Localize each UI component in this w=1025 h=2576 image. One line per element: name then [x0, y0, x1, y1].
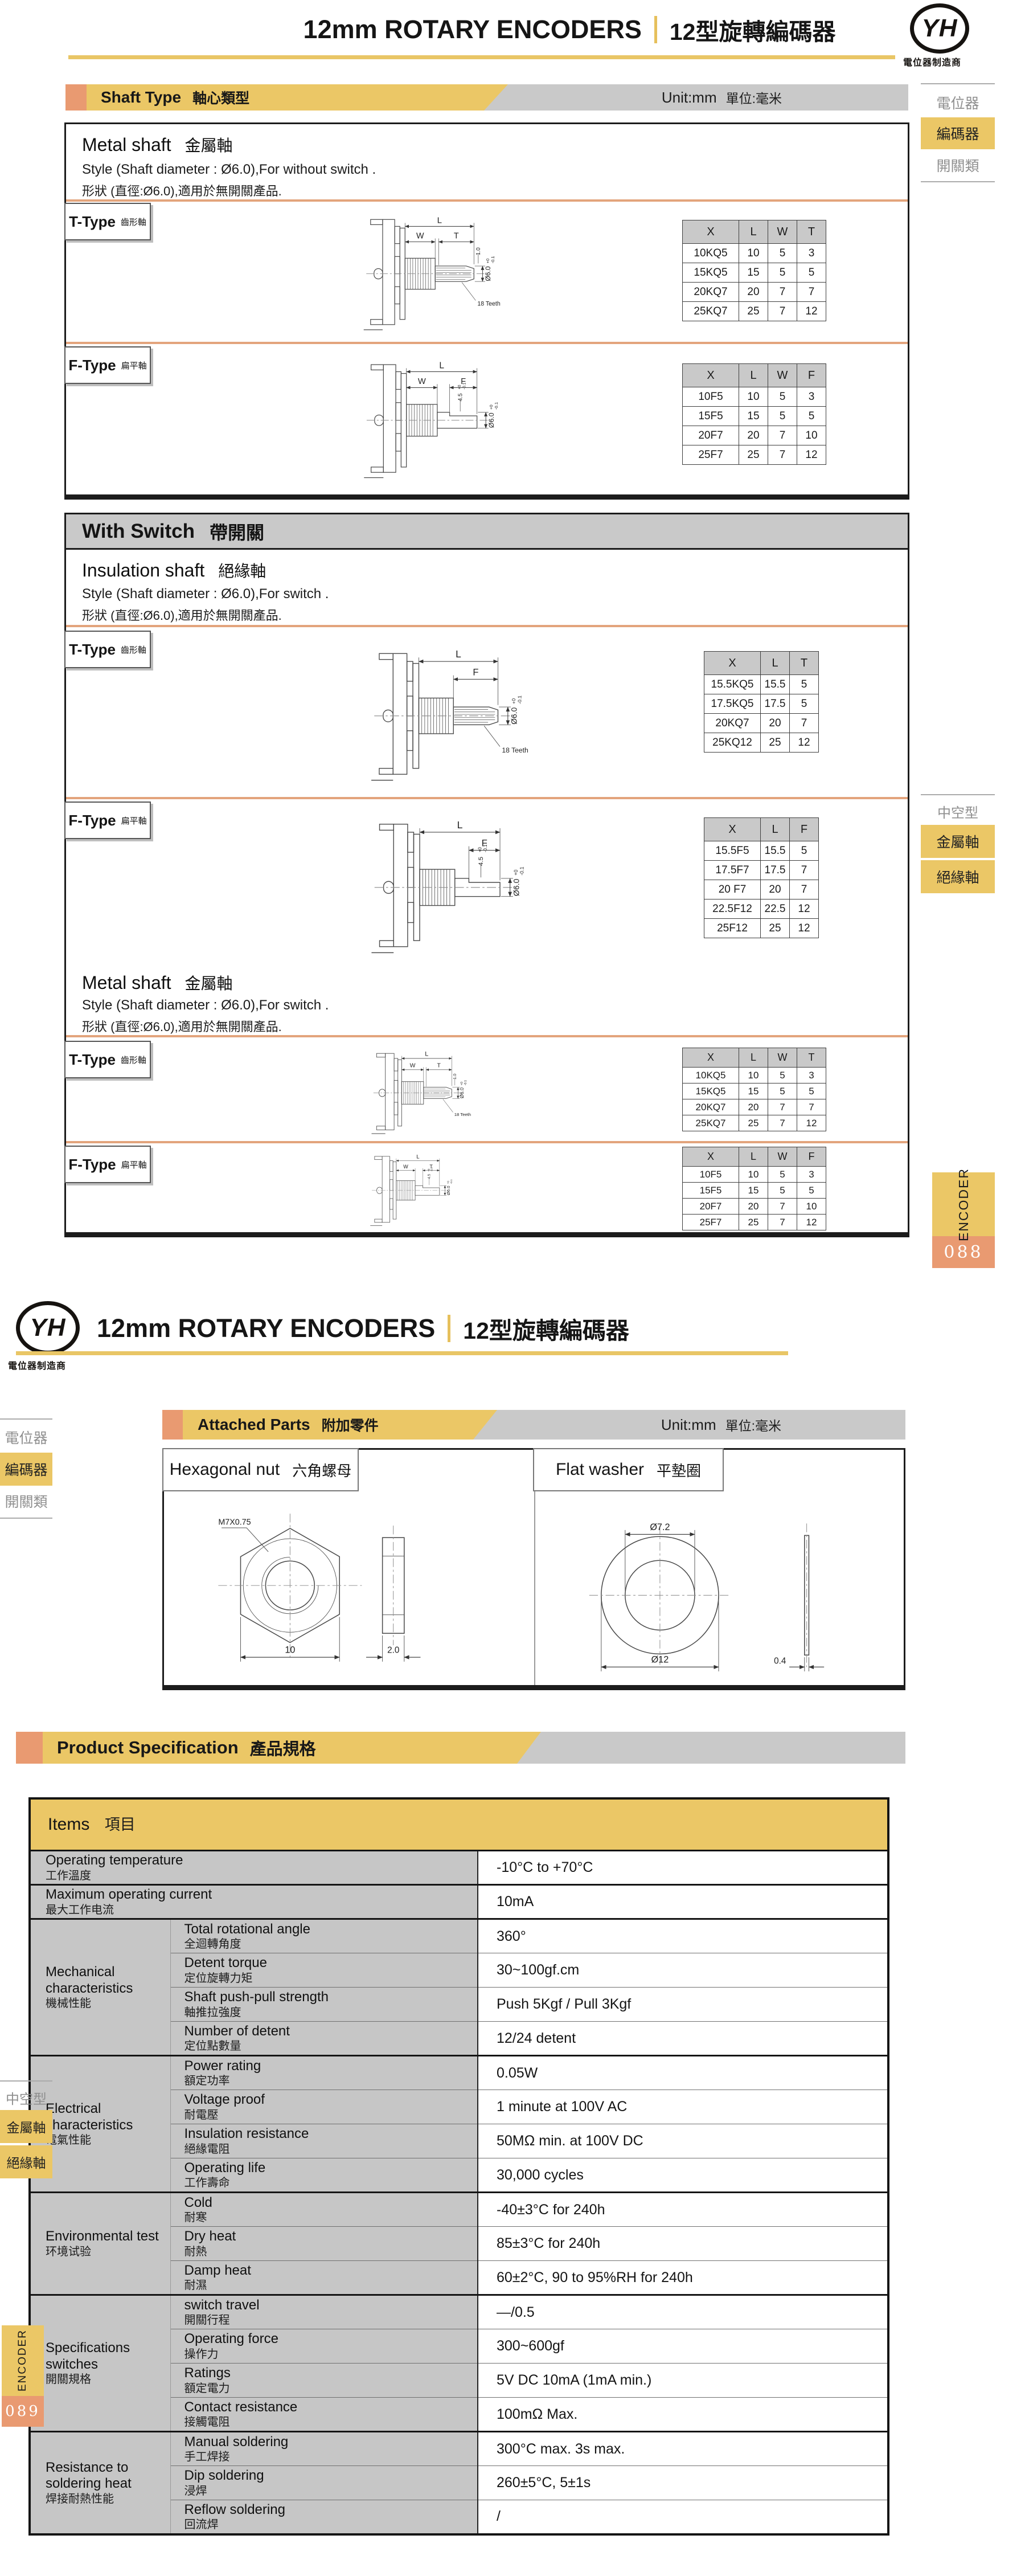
rail-tab-insulation-shaft: 絕緣軸 — [921, 860, 995, 893]
dim-cell: 12 — [790, 733, 819, 753]
spec-val-cell: / — [478, 2500, 888, 2534]
hex-nut-drawing: M7X0.75 10 2.0 — [187, 1504, 491, 1683]
svg-text:F: F — [473, 667, 478, 677]
box-attached-parts: Hexagonal nut 六角螺母 Flat washer 平墊圈 — [162, 1448, 905, 1690]
dim-row: 22.5F1222.512 — [704, 899, 819, 919]
bar-title-zh: 產品規格 — [250, 1736, 316, 1760]
badge-encoder: ENCODER — [2, 2325, 44, 2396]
dim-cell: 20 F7 — [704, 880, 761, 899]
svg-text:4.5: 4.5 — [457, 393, 464, 401]
title-zh: 12型旋轉編碼器 — [463, 1311, 629, 1346]
dim-cell: 20KQ7 — [704, 714, 761, 733]
dim-row: 10KQ51053 — [683, 244, 826, 263]
rail-item-switch: 開關類 — [921, 153, 995, 178]
dim-cell: 5 — [797, 407, 826, 426]
svg-text:-0.1: -0.1 — [516, 696, 522, 704]
dim-cell: 20 — [761, 880, 790, 899]
dim-cell: 5 — [768, 244, 797, 263]
bar-title-zh: 軸心類型 — [192, 87, 249, 108]
spec-sub-cell: Reflow soldering回流焊 — [170, 2500, 478, 2534]
svg-text:4.5: 4.5 — [428, 1173, 432, 1179]
dim-cell: 7 — [768, 1115, 797, 1131]
page-badge: ENCODER 089 — [2, 2325, 44, 2427]
shaft-type-label-t: T-Type 齒形軸 — [64, 203, 151, 240]
dim-row: 10KQ51053 — [683, 1068, 826, 1083]
dim-cell: 15.5KQ5 — [704, 675, 761, 694]
dim-cell: 5 — [797, 263, 826, 283]
spec-val-cell: 360° — [478, 1919, 888, 1953]
spec-sub-cell: Detent torque定位旋轉力矩 — [170, 1953, 478, 1988]
svg-text:+0: +0 — [511, 698, 516, 704]
type-label-zh: 扁平軸 — [121, 815, 147, 827]
subsection-title-en: Insulation shaft — [82, 560, 204, 581]
box-metal-shaft-no-switch: Metal shaft 金屬軸 Style (Shaft diameter : … — [64, 122, 909, 500]
dim-cell: 25F7 — [683, 445, 739, 465]
dim-cell: 7 — [790, 861, 819, 880]
dim-header-cell: F — [797, 1147, 826, 1167]
dim-row: 15.5F515.55 — [704, 841, 819, 861]
dim-header-cell: X — [683, 1048, 739, 1068]
title-zh: 12型旋轉編碼器 — [670, 13, 836, 47]
hex-nut-label-en: Hexagonal nut — [170, 1460, 280, 1479]
svg-text:W: W — [410, 1062, 416, 1069]
dim-header-cell: W — [768, 364, 797, 387]
subsection-title: Metal shaft 金屬軸 — [82, 133, 233, 156]
dim-row: 15F51555 — [683, 407, 826, 426]
dim-header-cell: W — [768, 1048, 797, 1068]
page-2: YH 電位器制造商 12mm ROTARY ENCODERS 12型旋轉編碼器 … — [0, 1287, 1025, 2576]
t-type-drawing: LWTØ6.0+0-0.11.018 Teeth — [362, 1040, 497, 1140]
dim-cell: 12 — [797, 445, 826, 465]
encoder-technical-drawing: LWFØ6.0+0-0.14.5+0-0.1 — [351, 345, 540, 486]
spec-val-cell: Push 5Kgf / Pull 3Kgf — [478, 1988, 888, 2022]
dim-cell: 3 — [797, 1167, 826, 1183]
dim-cell: 10KQ5 — [683, 1068, 739, 1083]
svg-text:18 Teeth: 18 Teeth — [454, 1112, 471, 1117]
encoder-technical-drawing: LWTØ6.0+0-0.11.018 Teeth — [362, 1040, 497, 1140]
spec-val-cell: 0.05W — [478, 2056, 888, 2090]
spec-sub-cell: Dry heat耐熱 — [170, 2227, 478, 2261]
dim-row: 25F725712 — [683, 445, 826, 465]
hex-nut-label: Hexagonal nut 六角螺母 — [162, 1448, 359, 1491]
dim-cell: 12 — [790, 919, 819, 938]
spec-row: Electrical characteristics電氣性能Power rati… — [30, 2056, 888, 2090]
style-note-zh: 形狀 (直徑:Ø6.0),適用於無開關產品. — [82, 181, 282, 199]
svg-text:-0.1: -0.1 — [483, 844, 488, 852]
with-switch-zh: 帶開關 — [210, 518, 264, 545]
rail-tab-encoder-active: 編碼器 — [921, 117, 995, 149]
svg-text:T: T — [454, 232, 459, 241]
svg-text:-0.1: -0.1 — [463, 382, 467, 389]
spec-sub-cell: Dip soldering浸焊 — [170, 2466, 478, 2500]
svg-text:+0: +0 — [489, 404, 494, 410]
dim-cell: 17.5 — [761, 694, 790, 714]
bar-accent — [65, 84, 87, 111]
dim-header-cell: X — [683, 1147, 739, 1167]
dim-row: 10F51053 — [683, 387, 826, 407]
dim-cell: 5 — [797, 1183, 826, 1199]
spec-sub-cell: Number of detent定位點數量 — [170, 2022, 478, 2056]
spec-val-cell: 12/24 detent — [478, 2022, 888, 2056]
spec-cat-cell: Operating temperature工作溫度 — [30, 1851, 478, 1885]
dim-cell: 10 — [797, 1199, 826, 1215]
subsection-title-zh: 絕緣軸 — [218, 559, 266, 582]
spec-sub-cell: Contact resistance接觸電阻 — [170, 2398, 478, 2432]
section-bar-shaft-type: Shaft Type 軸心類型 Unit:mm 單位:毫米 — [65, 84, 908, 111]
flat-washer-label-en: Flat washer — [556, 1460, 644, 1479]
spec-sub-cell: Insulation resistance絕緣電阻 — [170, 2124, 478, 2158]
t-type-drawing: LFØ6.0+0-0.118 Teeth — [356, 632, 569, 790]
dim-header-cell: L — [739, 220, 768, 244]
rail-item-potentiometer: 電位器 — [921, 90, 995, 115]
svg-text:+0: +0 — [485, 259, 490, 264]
spec-val-cell: -40±3°C for 240h — [478, 2193, 888, 2227]
salmon-divider — [66, 342, 908, 344]
spec-cat-cell: Maximum operating current最大工作电流 — [30, 1885, 478, 1919]
dim-header-cell: L — [739, 1147, 768, 1167]
rail-divider — [0, 1518, 52, 1519]
dim-cell: 10 — [739, 387, 768, 407]
salmon-divider — [66, 797, 908, 799]
dim-cell: 15KQ5 — [683, 263, 739, 283]
spec-val-cell: 260±5°C, 5±1s — [478, 2466, 888, 2500]
shaft-type-label-t: T-Type 齒形軸 — [64, 1041, 151, 1078]
dim-row: 15KQ51555 — [683, 1083, 826, 1099]
type-label-en: T-Type — [69, 1051, 116, 1069]
dim-row: 15.5KQ515.55 — [704, 675, 819, 694]
dim-cell: 7 — [768, 302, 797, 321]
nut-thickness-dim: 2.0 — [387, 1646, 399, 1655]
dim-cell: 17.5 — [761, 861, 790, 880]
svg-text:18 Teeth: 18 Teeth — [477, 301, 501, 308]
unit-label: Unit:mm 單位:毫米 — [661, 1410, 781, 1440]
dim-row: 15KQ51555 — [683, 263, 826, 283]
encoder-technical-drawing: LFØ6.0+0-0.14.5+0-0.1 — [356, 802, 572, 963]
rail-item-switch: 開關類 — [0, 1489, 52, 1513]
bar-accent — [162, 1410, 183, 1440]
dim-cell: 20 — [761, 714, 790, 733]
shaft-type-label-f: F-Type 扁平軸 — [64, 346, 151, 384]
svg-text:L: L — [416, 1154, 419, 1160]
flat-washer-label-zh: 平墊圈 — [657, 1459, 701, 1481]
dim-row: 25F122512 — [704, 919, 819, 938]
spec-val-cell: 300~600gf — [478, 2329, 888, 2364]
dim-header-cell: X — [704, 818, 761, 841]
spec-val-cell: 300°C max. 3s max. — [478, 2432, 888, 2466]
style-note-zh: 形狀 (直徑:Ø6.0),適用於無開關產品. — [82, 1017, 282, 1035]
svg-text:W: W — [403, 1164, 408, 1170]
dim-cell: 5 — [768, 387, 797, 407]
badge-encoder: ENCODER — [932, 1172, 995, 1236]
spec-val-cell: 10mA — [478, 1885, 888, 1919]
dim-cell: 12 — [797, 1115, 826, 1131]
spec-sub-cell: Damp heat耐濕 — [170, 2261, 478, 2295]
with-switch-bar: With Switch 帶開關 — [66, 514, 908, 550]
svg-text:-0.1: -0.1 — [494, 402, 499, 410]
washer-outer-dim: Ø12 — [651, 1655, 669, 1665]
type-label-en: T-Type — [69, 641, 116, 659]
svg-text:+0: +0 — [461, 1082, 464, 1085]
svg-text:18 Teeth: 18 Teeth — [502, 746, 528, 754]
spec-val-cell: —/0.5 — [478, 2295, 888, 2329]
type-label-en: F-Type — [68, 357, 116, 374]
spec-row: Resistance to soldering heat焊接耐熱性能Manual… — [30, 2432, 888, 2466]
spec-row: Specifications switches開關規格switch travel… — [30, 2295, 888, 2329]
svg-text:4.5: 4.5 — [478, 857, 485, 866]
dim-row: 20KQ72077 — [683, 1099, 826, 1115]
bar-title-en: Product Specification — [57, 1737, 239, 1758]
hex-nut-label-zh: 六角螺母 — [292, 1459, 351, 1481]
dimension-table-t: XLWT 10KQ5105315KQ5155520KQ7207725KQ7257… — [682, 1048, 826, 1131]
dim-cell: 7 — [768, 1215, 797, 1230]
dim-cell: 7 — [768, 445, 797, 465]
dim-cell: 25 — [761, 733, 790, 753]
rail-divider — [921, 181, 995, 182]
bar-title-en: Attached Parts — [198, 1416, 310, 1434]
shaft-type-label-f: F-Type 扁平軸 — [64, 802, 151, 839]
dim-row: 15F51555 — [683, 1183, 826, 1199]
spec-cat-cell: Mechanical characteristics機械性能 — [30, 1919, 170, 2056]
bar-accent — [16, 1732, 43, 1764]
spec-cat-cell: Environmental test环境试验 — [30, 2193, 170, 2295]
washer-inner-dim: Ø7.2 — [650, 1522, 670, 1532]
dim-cell: 17.5KQ5 — [704, 694, 761, 714]
bar-title-en: Shaft Type — [101, 88, 181, 107]
spec-row: Maximum operating current最大工作电流10mA — [30, 1885, 888, 1919]
spec-val-cell: 5V DC 10mA (1mA min.) — [478, 2364, 888, 2398]
dim-cell: 3 — [797, 1068, 826, 1083]
dim-cell: 12 — [797, 302, 826, 321]
dim-header-cell: W — [768, 1147, 797, 1167]
dim-header-cell: X — [704, 652, 761, 675]
dim-cell: 15F5 — [683, 407, 739, 426]
rail-tab-metal-shaft: 金屬軸 — [0, 2110, 52, 2143]
rail-heading-hollow: 中空型 — [921, 800, 995, 823]
rail-tab-encoder-active: 編碼器 — [0, 1453, 52, 1486]
dim-cell: 5 — [790, 694, 819, 714]
dim-cell: 20 — [739, 1099, 768, 1115]
svg-text:+0: +0 — [446, 1181, 450, 1184]
spec-val-cell: 30~100gf.cm — [478, 1953, 888, 1988]
spec-sub-cell: Total rotational angle全迴轉角度 — [170, 1919, 478, 1953]
dim-row: 25F725712 — [683, 1215, 826, 1230]
shaft-type-label-t: T-Type 齒形軸 — [64, 631, 151, 668]
dim-cell: 22.5 — [761, 899, 790, 919]
page-title: 12mm ROTARY ENCODERS 12型旋轉編碼器 — [97, 1311, 629, 1346]
dim-cell: 7 — [768, 426, 797, 445]
box-with-switch: With Switch 帶開關 Insulation shaft 絕緣軸 Sty… — [64, 513, 909, 1237]
svg-text:L: L — [439, 361, 444, 370]
svg-text:-0.1: -0.1 — [464, 1080, 468, 1085]
style-note-en: Style (Shaft diameter : Ø6.0),For withou… — [82, 162, 376, 178]
svg-text:-0.1: -0.1 — [450, 1179, 453, 1184]
subsection-title: Metal shaft 金屬軸 — [82, 971, 233, 994]
bar-title-zh: 附加零件 — [322, 1414, 379, 1435]
svg-text:Ø6.0: Ø6.0 — [459, 1087, 465, 1098]
dim-header-cell: T — [790, 652, 819, 675]
type-label-zh: 齒形軸 — [121, 1054, 146, 1066]
dim-row: 25KQ122512 — [704, 733, 819, 753]
dim-cell: 25 — [761, 919, 790, 938]
dim-cell: 5 — [768, 1167, 797, 1183]
dim-cell: 25KQ7 — [683, 302, 739, 321]
bar-title: Product Specification 產品規格 — [57, 1732, 316, 1764]
with-switch-en: With Switch — [82, 520, 195, 543]
flat-washer-drawing: Ø7.2 Ø12 0.4 — [551, 1504, 856, 1683]
dim-cell: 25KQ7 — [683, 1115, 739, 1131]
dimension-table-f: XLWF 10F5105315F5155520F72071025F725712 — [682, 1147, 826, 1230]
dim-cell: 15 — [739, 263, 768, 283]
type-label-en: F-Type — [68, 812, 116, 829]
dim-header-cell: T — [797, 1048, 826, 1068]
flat-washer-label: Flat washer 平墊圈 — [533, 1448, 724, 1491]
dim-cell: 5 — [790, 675, 819, 694]
spec-sub-cell: Operating force操作力 — [170, 2329, 478, 2364]
unit-en: Unit:mm — [661, 1416, 716, 1434]
dim-cell: 10 — [797, 426, 826, 445]
svg-text:Ø6.0: Ø6.0 — [446, 1186, 451, 1195]
dim-cell: 17.5F7 — [704, 861, 761, 880]
dim-header-cell: F — [790, 818, 819, 841]
title-separator — [448, 1315, 450, 1342]
spec-val-cell: 100mΩ Max. — [478, 2398, 888, 2432]
dim-cell: 15 — [739, 1083, 768, 1099]
spec-sub-cell: Cold耐寒 — [170, 2193, 478, 2227]
type-label-zh: 齒形軸 — [121, 644, 146, 656]
rail-tab-insulation-shaft: 絕緣軸 — [0, 2145, 52, 2178]
dim-header-cell: X — [683, 220, 739, 244]
dim-cell: 10 — [739, 1167, 768, 1183]
dim-header-cell: L — [739, 364, 768, 387]
svg-text:W: W — [416, 232, 424, 241]
dim-cell: 10 — [739, 244, 768, 263]
type-label-en: F-Type — [68, 1156, 116, 1173]
dim-cell: 25F12 — [704, 919, 761, 938]
dim-header-cell: L — [761, 818, 790, 841]
section-bar-attached-parts: Attached Parts 附加零件 Unit:mm 單位:毫米 — [162, 1410, 905, 1440]
dim-row: 20 F7207 — [704, 880, 819, 899]
page-title: 12mm ROTARY ENCODERS 12型旋轉編碼器 — [245, 13, 894, 47]
dim-cell: 20KQ7 — [683, 1099, 739, 1115]
dim-cell: 10F5 — [683, 1167, 739, 1183]
svg-text:Ø6.0: Ø6.0 — [487, 412, 495, 428]
unit-label: Unit:mm 單位:毫米 — [662, 84, 782, 111]
page-1: 12mm ROTARY ENCODERS 12型旋轉編碼器 YH 電位器制造商 … — [0, 0, 1025, 1287]
dim-cell: 20F7 — [683, 426, 739, 445]
f-type-drawing: LWFØ6.0+0-0.14.5+0-0.1 — [351, 345, 540, 486]
dim-cell: 20F7 — [683, 1199, 739, 1215]
dim-cell: 20 — [739, 283, 768, 302]
subsection-title-en: Metal shaft — [82, 134, 171, 156]
dim-cell: 20KQ7 — [683, 283, 739, 302]
dim-cell: 5 — [768, 1068, 797, 1083]
svg-text:+0: +0 — [427, 1168, 430, 1171]
unit-en: Unit:mm — [662, 89, 717, 107]
spec-row: Environmental test环境试验Cold耐寒-40±3°C for … — [30, 2193, 888, 2227]
svg-text:Ø6.0: Ø6.0 — [512, 878, 521, 896]
rail-divider — [0, 1418, 52, 1420]
svg-text:Ø6.0: Ø6.0 — [509, 707, 518, 724]
spec-cat-cell: Specifications switches開關規格 — [30, 2295, 170, 2432]
spec-row: Mechanical characteristics機械性能Total rota… — [30, 1919, 888, 1953]
brand-logo: YH — [910, 3, 969, 54]
unit-zh: 單位:毫米 — [726, 88, 782, 107]
page-number: 089 — [2, 2396, 44, 2427]
subsection-title: Insulation shaft 絕緣軸 — [82, 559, 266, 582]
dim-row: 17.5F717.57 — [704, 861, 819, 880]
dim-cell: 12 — [790, 899, 819, 919]
spec-header-row: Items 項目 — [30, 1798, 888, 1851]
dimension-table-f: XLF 15.5F515.5517.5F717.5720 F720722.5F1… — [704, 817, 819, 938]
svg-text:-0.1: -0.1 — [519, 866, 524, 875]
dim-cell: 7 — [797, 1099, 826, 1115]
svg-text:-0.1: -0.1 — [490, 256, 495, 263]
svg-text:+0: +0 — [513, 870, 519, 876]
spec-val-cell: 50MΩ min. at 100V DC — [478, 2124, 888, 2158]
svg-text:L: L — [457, 819, 463, 831]
dim-cell: 10F5 — [683, 387, 739, 407]
salmon-divider — [66, 1035, 908, 1037]
nut-width-dim: 10 — [285, 1645, 295, 1655]
spec-val-cell: 1 minute at 100V AC — [478, 2090, 888, 2124]
dim-cell: 7 — [797, 283, 826, 302]
dim-cell: 7 — [768, 1099, 797, 1115]
subsection-title-en: Metal shaft — [82, 972, 171, 993]
brand-logo: YH — [16, 1301, 80, 1355]
spec-sub-cell: Ratings額定電力 — [170, 2364, 478, 2398]
style-note-en: Style (Shaft diameter : Ø6.0),For switch… — [82, 997, 329, 1013]
bar-title: Attached Parts 附加零件 — [198, 1410, 379, 1440]
dim-cell: 15F5 — [683, 1183, 739, 1199]
header-rule — [68, 55, 895, 59]
style-note-zh: 形狀 (直徑:Ø6.0),適用於無開關產品. — [82, 606, 282, 624]
rail-tab-metal-shaft: 金屬軸 — [921, 825, 995, 858]
title-en: 12mm ROTARY ENCODERS — [97, 1314, 435, 1343]
rail-divider — [921, 83, 995, 84]
unit-zh: 單位:毫米 — [725, 1415, 781, 1434]
spec-sub-cell: switch travel開關行程 — [170, 2295, 478, 2329]
dim-row: 20F720710 — [683, 1199, 826, 1215]
badge-label: ENCODER — [956, 1168, 971, 1241]
badge-label: ENCODER — [17, 2329, 29, 2391]
dim-row: 20KQ72077 — [683, 283, 826, 302]
nut-thread-dim: M7X0.75 — [218, 1518, 251, 1527]
type-label-en: T-Type — [69, 213, 116, 231]
dim-cell: 10KQ5 — [683, 244, 739, 263]
dim-cell: 5 — [768, 263, 797, 283]
dimension-table-t: XLT 15.5KQ515.5517.5KQ517.5520KQ720725KQ… — [704, 651, 819, 753]
spec-sub-cell: Manual soldering手工焊接 — [170, 2432, 478, 2466]
dim-cell: 10 — [739, 1068, 768, 1083]
spec-sub-cell: Power rating額定功率 — [170, 2056, 478, 2090]
dim-cell: 7 — [768, 283, 797, 302]
dim-cell: 15 — [739, 1183, 768, 1199]
dim-cell: 5 — [768, 1083, 797, 1099]
salmon-divider — [66, 1141, 908, 1143]
f-type-drawing: LWTØ6.0+0-0.14.5+0-0.1 — [362, 1144, 478, 1231]
dim-row: 20F720710 — [683, 426, 826, 445]
svg-text:L: L — [456, 648, 461, 660]
brand-tagline: 電位器制造商 — [8, 1358, 66, 1372]
dim-cell: 25 — [739, 1215, 768, 1230]
dim-cell: 15.5 — [761, 841, 790, 861]
dim-header-cell: L — [739, 1048, 768, 1068]
washer-thickness-dim: 0.4 — [774, 1657, 786, 1666]
dim-cell: 3 — [797, 244, 826, 263]
f-type-drawing: LFØ6.0+0-0.14.5+0-0.1 — [356, 802, 572, 963]
dim-cell: 7 — [790, 880, 819, 899]
shaft-type-label-f: F-Type 扁平軸 — [64, 1146, 151, 1183]
